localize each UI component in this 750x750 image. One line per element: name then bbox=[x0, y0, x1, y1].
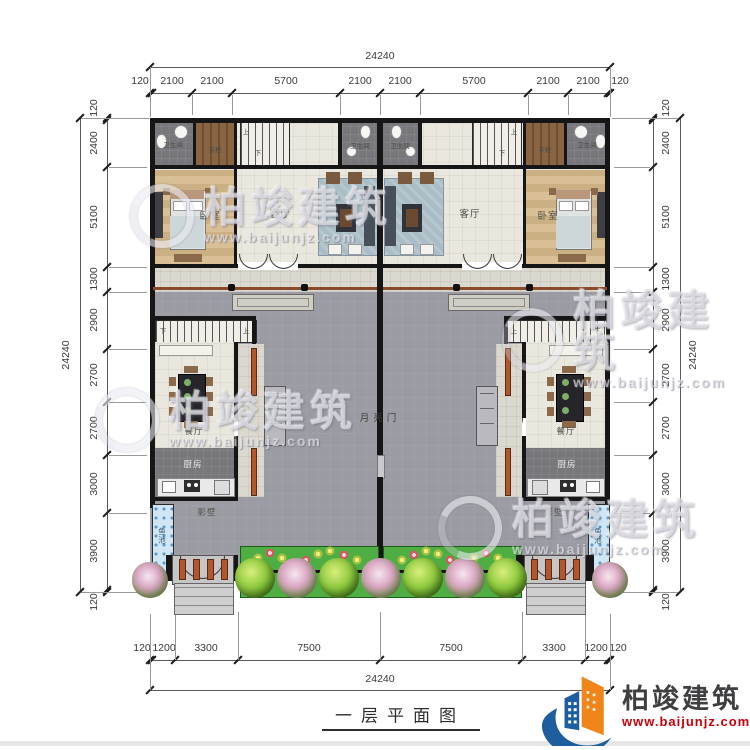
platform-line bbox=[268, 423, 282, 424]
wall bbox=[522, 497, 608, 501]
dim-ext bbox=[150, 67, 151, 117]
chair bbox=[547, 407, 554, 416]
pillow bbox=[575, 201, 589, 211]
side-table bbox=[420, 244, 434, 255]
label-stair-down: 下 bbox=[160, 325, 167, 335]
wall bbox=[504, 316, 608, 320]
label-stair-down: 下 bbox=[499, 147, 506, 157]
tree bbox=[487, 558, 527, 598]
flower bbox=[434, 550, 443, 559]
fridge bbox=[532, 480, 548, 495]
label-dining-right: 餐厅 bbox=[556, 425, 575, 437]
gate-post bbox=[531, 559, 538, 580]
label-stair-up: 上 bbox=[243, 126, 250, 136]
sideboard bbox=[159, 345, 213, 356]
dim-ext bbox=[380, 95, 381, 115]
gate-post bbox=[573, 559, 580, 580]
dim-label: 120 bbox=[660, 593, 672, 611]
party-wall bbox=[377, 118, 383, 455]
dim-ext bbox=[175, 612, 176, 660]
sideboard bbox=[549, 345, 603, 356]
dim-total-top: 24240 bbox=[365, 50, 394, 62]
dresser bbox=[558, 254, 586, 262]
column bbox=[301, 284, 308, 291]
chair bbox=[184, 366, 198, 373]
burner bbox=[570, 483, 574, 487]
chair bbox=[584, 377, 591, 386]
wall bbox=[252, 316, 256, 344]
chair bbox=[547, 377, 554, 386]
coffee-table-top bbox=[406, 209, 418, 227]
burner bbox=[187, 483, 191, 487]
wall bbox=[152, 497, 238, 501]
label-bathroom-center-left: 卫生间 bbox=[350, 140, 370, 150]
platform-line bbox=[480, 408, 494, 409]
chair bbox=[584, 392, 591, 401]
side-table bbox=[400, 244, 414, 255]
plate bbox=[184, 407, 191, 414]
dim-label: 2700 bbox=[660, 363, 672, 386]
kitchen-sink bbox=[586, 481, 600, 493]
dim-label: 120 bbox=[611, 75, 629, 87]
dim-ext bbox=[109, 167, 147, 168]
label-wardrobe-left: 衣柜 bbox=[209, 144, 222, 154]
dim-ext bbox=[109, 267, 147, 268]
gate-post bbox=[221, 559, 228, 580]
wall bbox=[152, 316, 256, 320]
dim-ext bbox=[109, 349, 147, 350]
column bbox=[453, 284, 460, 291]
company-logo: 柏竣建筑 www.baijunjz.com bbox=[540, 668, 750, 746]
platform-line bbox=[480, 393, 494, 394]
veranda-beam bbox=[153, 287, 377, 290]
dim-label: 2900 bbox=[88, 308, 100, 331]
nightstand bbox=[205, 188, 212, 195]
label-stair-down: 下 bbox=[594, 325, 601, 335]
flower bbox=[422, 547, 431, 556]
wall bbox=[523, 167, 526, 267]
chair bbox=[206, 392, 213, 401]
label-stair-up: 上 bbox=[243, 325, 250, 335]
label-bedroom-right: 卧室 bbox=[537, 208, 558, 222]
label-wardrobe-right: 衣柜 bbox=[539, 144, 552, 154]
gate-post bbox=[559, 559, 566, 580]
pillow bbox=[559, 201, 573, 211]
dim-ext bbox=[192, 95, 193, 115]
steps bbox=[448, 294, 530, 311]
label-dining-left: 餐厅 bbox=[184, 425, 203, 437]
dim-label: 2700 bbox=[88, 416, 100, 439]
wall bbox=[234, 118, 237, 167]
dim-ext bbox=[614, 167, 650, 168]
tree bbox=[361, 558, 401, 598]
dim-ext bbox=[109, 402, 147, 403]
side-table bbox=[348, 244, 362, 255]
stair-right-wing bbox=[505, 320, 607, 343]
label-screen-wall-left: 影壁 bbox=[197, 506, 216, 518]
armchair bbox=[326, 172, 340, 184]
chair bbox=[169, 377, 176, 386]
label-kitchen-left: 厨房 bbox=[183, 458, 202, 470]
side-table bbox=[328, 244, 342, 255]
wall bbox=[193, 118, 196, 167]
dim-label: 2100 bbox=[536, 75, 559, 87]
dim-line bbox=[107, 118, 108, 592]
dim-ext bbox=[109, 292, 147, 293]
chair bbox=[547, 392, 554, 401]
burner bbox=[194, 483, 198, 487]
entry-platform bbox=[476, 386, 498, 446]
dim-label: 120 bbox=[609, 642, 627, 654]
stair-left-wing bbox=[155, 320, 257, 343]
dim-ext bbox=[612, 118, 678, 119]
dim-label: 2100 bbox=[576, 75, 599, 87]
porch-post bbox=[505, 448, 511, 496]
label-bathroom-right: 卫生间 bbox=[577, 139, 597, 149]
washer bbox=[174, 125, 188, 139]
tree bbox=[132, 562, 168, 598]
dim-label: 2100 bbox=[388, 75, 411, 87]
bed-headboard bbox=[556, 190, 590, 199]
tree bbox=[235, 558, 275, 598]
label-bedroom-left: 卧室 bbox=[199, 208, 220, 222]
wall bbox=[234, 167, 237, 267]
dim-ext bbox=[238, 612, 239, 660]
porch-post bbox=[251, 448, 257, 496]
tv-wall bbox=[155, 192, 163, 238]
toilet bbox=[391, 125, 402, 139]
burner bbox=[563, 483, 567, 487]
dim-label: 5700 bbox=[462, 75, 485, 87]
platform-line bbox=[268, 393, 282, 394]
wall bbox=[418, 118, 422, 169]
sofa bbox=[385, 186, 396, 246]
label-fish-pond-right: 鱼池 bbox=[593, 528, 604, 545]
plate bbox=[184, 379, 191, 386]
kitchen-sink bbox=[162, 481, 176, 493]
gate-steps bbox=[526, 583, 586, 615]
dim-ext bbox=[610, 67, 611, 117]
gate-post bbox=[207, 559, 214, 580]
dim-ext bbox=[109, 455, 147, 456]
dim-label: 2100 bbox=[200, 75, 223, 87]
chair bbox=[206, 407, 213, 416]
label-moon-gate: 月亮门 bbox=[360, 410, 401, 424]
plate bbox=[562, 379, 569, 386]
dim-label: 7500 bbox=[297, 642, 320, 654]
platform-line bbox=[268, 408, 282, 409]
gate-post bbox=[545, 559, 552, 580]
dim-ext bbox=[522, 612, 523, 660]
title-underline bbox=[322, 729, 480, 731]
company-url: www.baijunjz.com bbox=[622, 714, 750, 729]
armchair bbox=[348, 172, 362, 184]
tree bbox=[403, 558, 443, 598]
dim-label: 3000 bbox=[88, 472, 100, 495]
flower bbox=[314, 550, 323, 559]
floor-plan-sheet: 24240 120 2100 2100 5700 2100 2100 5700 … bbox=[0, 0, 750, 750]
dim-line bbox=[80, 118, 81, 592]
porch-post bbox=[251, 348, 257, 396]
dim-label: 5100 bbox=[88, 205, 100, 228]
flower bbox=[326, 547, 335, 556]
dim-label: 3300 bbox=[194, 642, 217, 654]
column bbox=[228, 284, 235, 291]
dim-total-right: 24240 bbox=[687, 340, 699, 369]
tree bbox=[277, 558, 317, 598]
flower bbox=[482, 549, 491, 558]
blanket bbox=[556, 216, 590, 248]
label-stair-up: 上 bbox=[511, 325, 518, 335]
label-kitchen-right: 厨房 bbox=[557, 458, 576, 470]
dim-line bbox=[653, 118, 654, 592]
porch-post bbox=[505, 348, 511, 396]
wall bbox=[564, 118, 567, 167]
nightstand bbox=[549, 188, 556, 195]
washer bbox=[574, 125, 588, 139]
company-name: 柏竣建筑 bbox=[622, 685, 750, 715]
wall bbox=[338, 118, 342, 169]
company-logo-icon bbox=[540, 668, 616, 746]
dim-ext bbox=[232, 95, 233, 115]
dim-label: 3300 bbox=[542, 642, 565, 654]
dim-ext bbox=[614, 267, 650, 268]
sofa bbox=[364, 186, 375, 246]
gate-post bbox=[179, 559, 186, 580]
wall bbox=[523, 118, 526, 167]
dim-label: 2700 bbox=[88, 363, 100, 386]
plate bbox=[184, 393, 191, 400]
steps bbox=[232, 294, 314, 311]
dim-total-bottom: 24240 bbox=[365, 673, 394, 685]
wall bbox=[605, 118, 610, 508]
tree bbox=[445, 558, 485, 598]
dim-label: 2900 bbox=[660, 308, 672, 331]
dim-total-left: 24240 bbox=[60, 340, 72, 369]
dim-label: 5700 bbox=[274, 75, 297, 87]
moon-gate-opening bbox=[377, 455, 385, 479]
dim-ext bbox=[81, 118, 149, 119]
gate-post bbox=[193, 559, 200, 580]
dim-ext bbox=[568, 95, 569, 115]
dining-table bbox=[178, 374, 206, 422]
fridge bbox=[214, 480, 230, 495]
dim-line bbox=[150, 67, 610, 68]
entry-platform bbox=[264, 386, 286, 446]
tree bbox=[319, 558, 359, 598]
floor-plan: 卫生间 衣柜 卫生间 卫生间 衣柜 卫生间 上 下 上 下 卧室 客厅 客厅 卧… bbox=[150, 118, 610, 592]
dim-label: 120 bbox=[660, 99, 672, 117]
gate-steps bbox=[174, 583, 234, 615]
dim-ext bbox=[150, 614, 151, 690]
label-screen-wall-right: 影壁 bbox=[544, 506, 563, 518]
dim-ext bbox=[109, 513, 147, 514]
label-stair-up: 上 bbox=[511, 126, 518, 136]
dim-ext bbox=[614, 513, 650, 514]
dim-label: 1200 bbox=[584, 642, 607, 654]
dining-table bbox=[556, 374, 584, 422]
wall bbox=[522, 436, 526, 500]
nightstand bbox=[591, 188, 598, 195]
label-stair-down: 下 bbox=[255, 147, 262, 157]
dim-label: 3900 bbox=[660, 539, 672, 562]
dim-ext bbox=[614, 349, 650, 350]
dim-ext bbox=[614, 455, 650, 456]
armchair bbox=[398, 172, 412, 184]
dim-label: 120 bbox=[88, 593, 100, 611]
chair bbox=[169, 392, 176, 401]
dim-ext bbox=[614, 292, 650, 293]
tv-wall bbox=[597, 192, 605, 238]
tree bbox=[592, 562, 628, 598]
armchair bbox=[420, 172, 434, 184]
chair bbox=[562, 366, 576, 373]
label-bathroom-center-right: 卫生间 bbox=[390, 140, 410, 150]
dim-label: 1300 bbox=[660, 267, 672, 290]
dim-ext bbox=[528, 95, 529, 115]
dim-line bbox=[680, 118, 681, 592]
dim-label: 1200 bbox=[152, 642, 175, 654]
dim-label: 120 bbox=[133, 642, 151, 654]
veranda-beam bbox=[383, 287, 607, 290]
step-line bbox=[453, 298, 525, 307]
plate bbox=[562, 407, 569, 414]
dim-label: 2400 bbox=[660, 131, 672, 154]
dim-ext bbox=[420, 95, 421, 115]
dim-label: 2400 bbox=[88, 131, 100, 154]
wall bbox=[504, 316, 508, 344]
dim-label: 2100 bbox=[348, 75, 371, 87]
dim-ext bbox=[380, 612, 381, 660]
toilet bbox=[360, 125, 371, 139]
dim-label: 7500 bbox=[439, 642, 462, 654]
step-line bbox=[237, 298, 309, 307]
dim-label: 2100 bbox=[160, 75, 183, 87]
dim-label: 120 bbox=[131, 75, 149, 87]
dim-label: 1300 bbox=[88, 267, 100, 290]
coffee-table-top bbox=[340, 209, 352, 227]
nightstand bbox=[163, 188, 170, 195]
label-living-left: 客厅 bbox=[269, 206, 290, 220]
dim-label: 2700 bbox=[660, 416, 672, 439]
flower bbox=[353, 556, 362, 565]
label-bathroom-left: 卫生间 bbox=[163, 139, 183, 149]
column bbox=[526, 284, 533, 291]
plate bbox=[562, 393, 569, 400]
label-fish-pond-left: 鱼池 bbox=[157, 528, 168, 545]
label-living-right: 客厅 bbox=[459, 206, 480, 220]
dim-label: 5100 bbox=[660, 205, 672, 228]
dresser bbox=[174, 254, 202, 262]
platform-line bbox=[480, 423, 494, 424]
flower bbox=[266, 549, 275, 558]
chair bbox=[206, 377, 213, 386]
dim-ext bbox=[585, 612, 586, 660]
dim-label: 3000 bbox=[660, 472, 672, 495]
flower bbox=[398, 556, 407, 565]
dim-ext bbox=[614, 402, 650, 403]
dim-label: 3900 bbox=[88, 539, 100, 562]
wall bbox=[522, 342, 526, 418]
dim-ext bbox=[340, 95, 341, 115]
bed-headboard bbox=[170, 190, 204, 199]
chair bbox=[584, 407, 591, 416]
drawing-title: 一层平面图 bbox=[335, 702, 465, 727]
dim-label: 120 bbox=[88, 99, 100, 117]
chair bbox=[169, 407, 176, 416]
pillow bbox=[173, 201, 187, 211]
